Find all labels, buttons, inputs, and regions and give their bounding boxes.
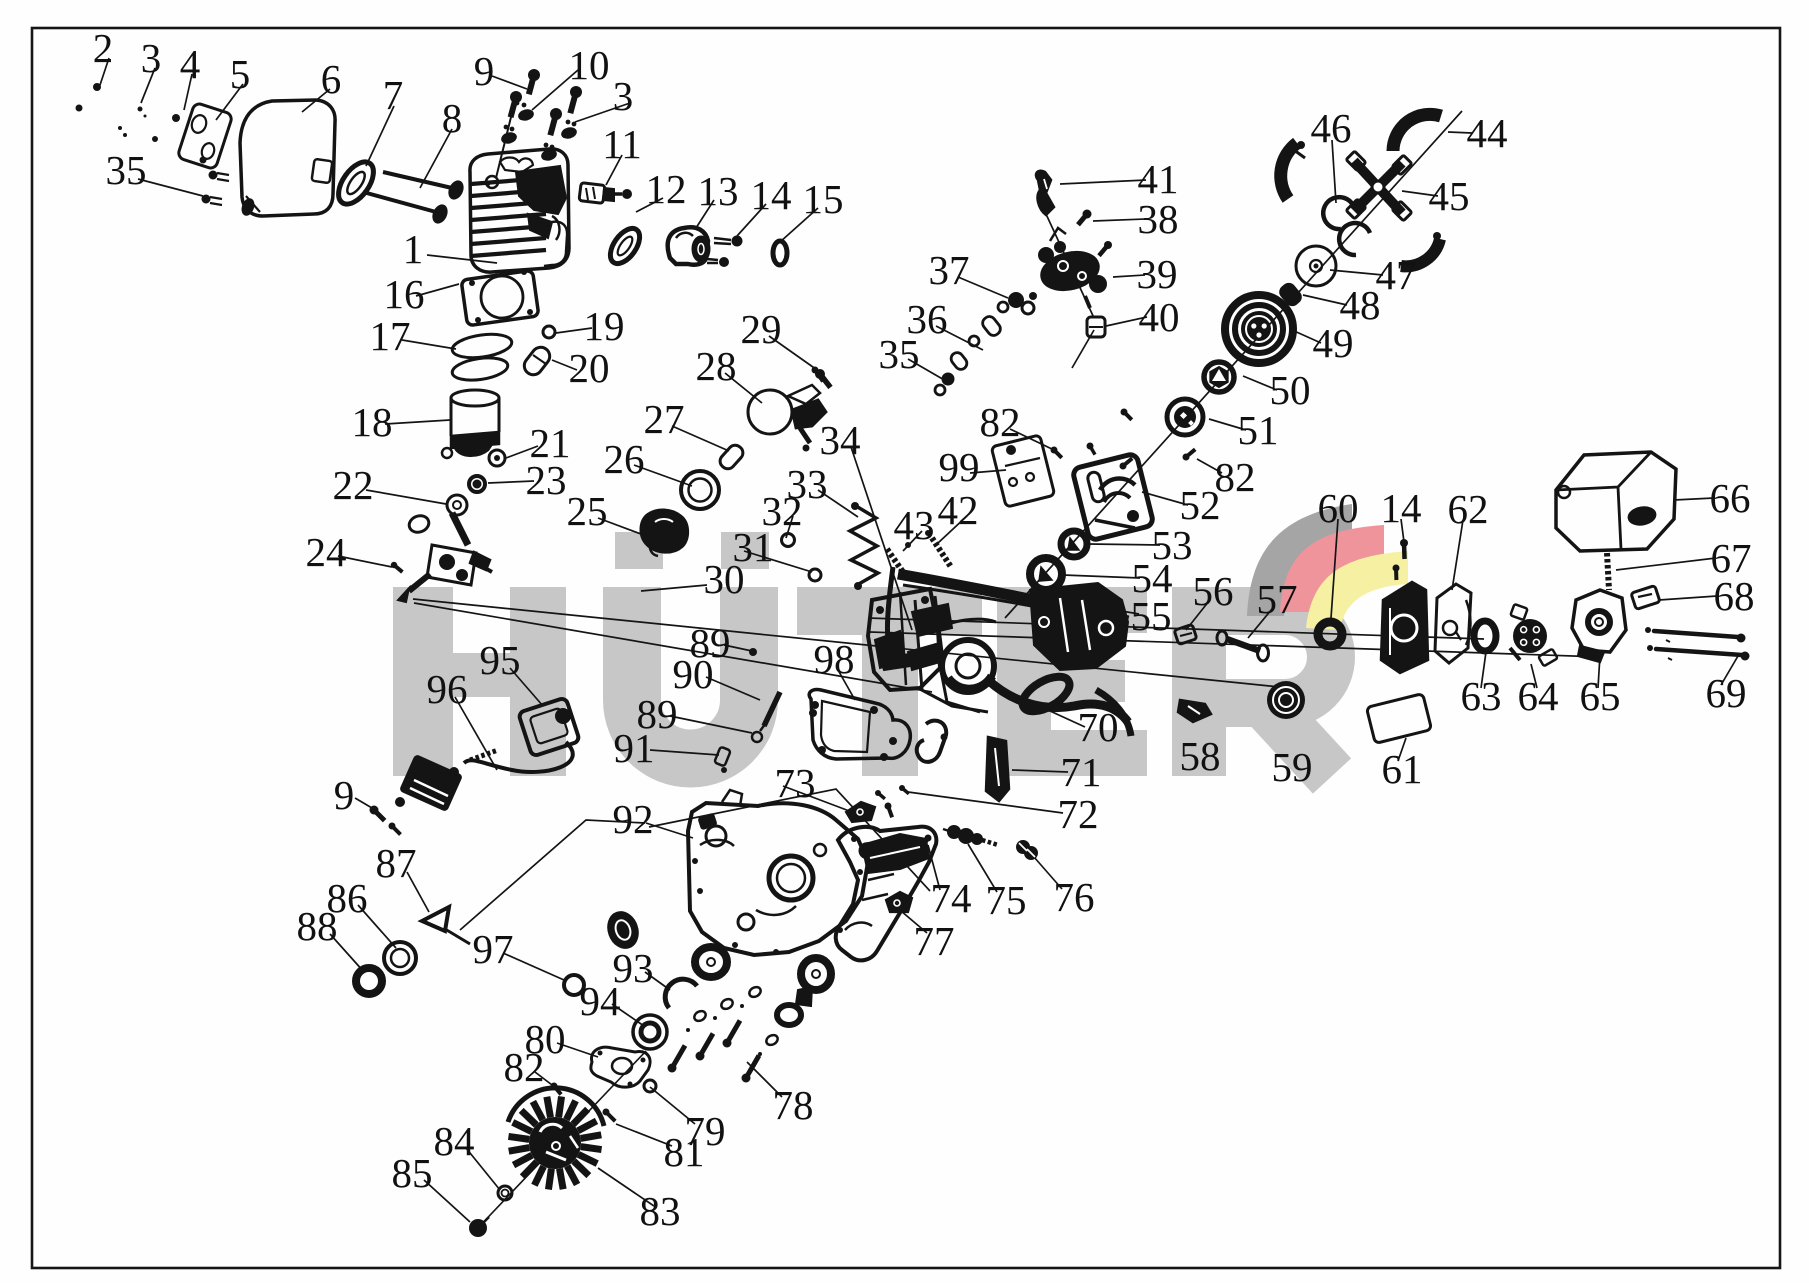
svg-text:22: 22 <box>333 462 374 508</box>
svg-text:47: 47 <box>1376 252 1417 298</box>
svg-text:84: 84 <box>434 1118 475 1164</box>
svg-text:78: 78 <box>773 1082 814 1128</box>
svg-text:18: 18 <box>352 399 393 445</box>
svg-text:6: 6 <box>321 56 342 102</box>
svg-text:34: 34 <box>820 417 861 463</box>
svg-text:66: 66 <box>1710 475 1751 521</box>
svg-text:99: 99 <box>939 444 980 490</box>
svg-text:40: 40 <box>1139 294 1180 340</box>
svg-text:35: 35 <box>106 147 147 193</box>
svg-text:81: 81 <box>664 1129 705 1175</box>
svg-text:70: 70 <box>1078 704 1119 750</box>
svg-text:10: 10 <box>569 42 610 88</box>
svg-text:85: 85 <box>392 1150 433 1196</box>
svg-text:72: 72 <box>1058 791 1099 837</box>
svg-text:44: 44 <box>1467 110 1508 156</box>
svg-text:28: 28 <box>696 343 737 389</box>
svg-text:82: 82 <box>504 1044 545 1090</box>
svg-text:83: 83 <box>640 1188 681 1234</box>
svg-text:68: 68 <box>1714 573 1755 619</box>
svg-text:39: 39 <box>1137 251 1178 297</box>
svg-text:96: 96 <box>427 666 468 712</box>
svg-text:24: 24 <box>306 529 347 575</box>
svg-text:69: 69 <box>1706 670 1747 716</box>
svg-text:5: 5 <box>230 51 251 97</box>
svg-text:98: 98 <box>814 636 855 682</box>
svg-text:33: 33 <box>787 461 828 507</box>
svg-text:92: 92 <box>613 796 654 842</box>
svg-text:3: 3 <box>141 35 162 81</box>
svg-text:71: 71 <box>1061 749 1102 795</box>
svg-text:97: 97 <box>473 926 514 972</box>
svg-text:62: 62 <box>1448 486 1489 532</box>
svg-text:7: 7 <box>383 72 404 118</box>
svg-text:58: 58 <box>1180 733 1221 779</box>
svg-text:41: 41 <box>1138 156 1179 202</box>
svg-text:4: 4 <box>180 41 201 87</box>
svg-text:3: 3 <box>613 73 634 119</box>
svg-text:61: 61 <box>1382 746 1423 792</box>
svg-text:59: 59 <box>1272 744 1313 790</box>
svg-text:90: 90 <box>673 651 714 697</box>
svg-text:29: 29 <box>741 306 782 352</box>
svg-text:14: 14 <box>751 172 792 218</box>
svg-text:27: 27 <box>644 396 685 442</box>
svg-text:11: 11 <box>602 121 641 167</box>
svg-text:82: 82 <box>980 399 1021 445</box>
svg-text:25: 25 <box>567 488 608 534</box>
svg-text:55: 55 <box>1131 593 1172 639</box>
svg-text:12: 12 <box>646 166 687 212</box>
svg-text:16: 16 <box>384 271 425 317</box>
svg-text:9: 9 <box>474 48 495 94</box>
svg-text:8: 8 <box>442 95 463 141</box>
svg-text:1: 1 <box>403 226 424 272</box>
svg-text:42: 42 <box>938 487 979 533</box>
svg-text:37: 37 <box>929 247 970 293</box>
svg-text:60: 60 <box>1318 485 1359 531</box>
svg-text:94: 94 <box>580 978 621 1024</box>
svg-text:19: 19 <box>584 303 625 349</box>
svg-text:45: 45 <box>1429 173 1470 219</box>
svg-text:2: 2 <box>93 25 114 71</box>
svg-text:13: 13 <box>698 168 739 214</box>
svg-text:77: 77 <box>914 918 955 964</box>
svg-text:20: 20 <box>569 345 610 391</box>
svg-text:26: 26 <box>604 436 645 482</box>
svg-text:75: 75 <box>986 877 1027 923</box>
svg-text:51: 51 <box>1238 407 1279 453</box>
svg-text:14: 14 <box>1381 485 1422 531</box>
svg-text:56: 56 <box>1193 568 1234 614</box>
svg-text:88: 88 <box>297 903 338 949</box>
svg-text:91: 91 <box>614 725 655 771</box>
svg-text:87: 87 <box>376 840 417 886</box>
svg-text:73: 73 <box>775 760 816 806</box>
svg-text:23: 23 <box>526 457 567 503</box>
svg-text:46: 46 <box>1311 105 1352 151</box>
svg-text:38: 38 <box>1138 196 1179 242</box>
svg-text:82: 82 <box>1215 454 1256 500</box>
svg-text:95: 95 <box>480 637 521 683</box>
svg-text:76: 76 <box>1054 874 1095 920</box>
svg-text:36: 36 <box>907 296 948 342</box>
svg-text:57: 57 <box>1257 576 1298 622</box>
svg-text:17: 17 <box>370 313 411 359</box>
svg-text:9: 9 <box>334 772 355 818</box>
svg-text:64: 64 <box>1518 673 1559 719</box>
svg-text:74: 74 <box>931 875 972 921</box>
svg-text:15: 15 <box>803 176 844 222</box>
svg-text:49: 49 <box>1313 320 1354 366</box>
svg-text:43: 43 <box>894 502 935 548</box>
svg-text:65: 65 <box>1580 673 1621 719</box>
svg-text:63: 63 <box>1461 673 1502 719</box>
